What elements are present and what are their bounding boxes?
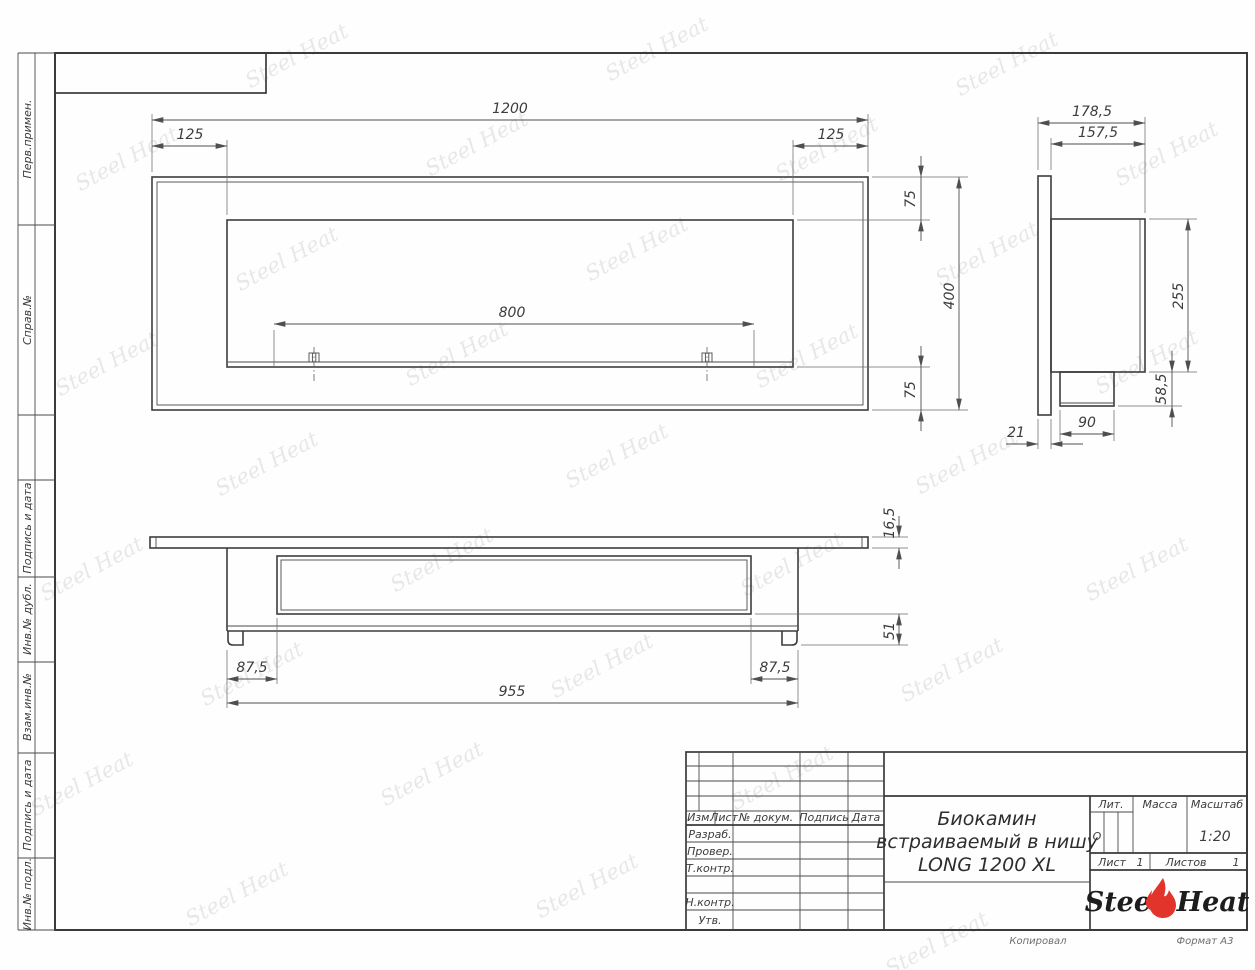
scale-value: 1:20 — [1199, 829, 1231, 845]
watermark: Steel Heat — [771, 111, 882, 185]
watermark: Steel Heat — [241, 18, 352, 92]
watermark: Steel Heat — [231, 221, 342, 295]
foot-left — [228, 631, 243, 645]
watermark: Steel Heat — [1111, 116, 1222, 190]
logo-heat-text: Heat — [1176, 887, 1250, 918]
watermark: Steel Heat — [401, 316, 512, 390]
dim-plan-right-offset: 87,5 — [759, 660, 790, 676]
dim-front-burner: 800 — [499, 305, 526, 321]
margin-label-inv-podl: Инв.№ подл. — [21, 858, 34, 930]
rev-header-doc: № докум. — [738, 811, 793, 824]
dim-front-total-width: 1200 — [492, 101, 528, 117]
dim-plan-rail-height: 51 — [882, 622, 898, 640]
staff-row-nkontr: Н.контр. — [685, 896, 734, 909]
watermark: Steel Heat — [211, 426, 322, 500]
rev-header-list: Лист — [709, 811, 738, 824]
dim-side-flange-thickness: 21 — [1007, 425, 1025, 441]
sheet-value: 1 — [1137, 856, 1144, 869]
copied-label: Копировал — [1009, 936, 1067, 947]
dim-front-height: 400 — [942, 283, 958, 310]
format-label: Формат А3 — [1177, 936, 1234, 947]
margin-label-podpis-data-1: Подпись и дата — [21, 482, 34, 573]
dim-front-right-offset: 125 — [818, 127, 845, 143]
dim-plan-body-width: 955 — [499, 684, 526, 700]
dim-side-box-width: 90 — [1078, 415, 1096, 431]
mass-label: Масса — [1142, 798, 1177, 811]
steelheat-logo: Steel Heat — [1085, 878, 1250, 918]
watermark: Steel Heat — [881, 906, 992, 970]
watermark: Steel Heat — [376, 736, 487, 810]
rev-header-date: Дата — [851, 811, 881, 824]
foot-right — [782, 631, 797, 645]
watermark: Steel Heat — [581, 211, 692, 285]
lit-value: О — [1093, 830, 1102, 843]
dim-plan-left-offset: 87,5 — [236, 660, 267, 676]
watermark-layer: Steel Heat Steel Heat Steel Heat Steel H… — [26, 11, 1222, 970]
watermark: Steel Heat — [546, 628, 657, 702]
watermark: Steel Heat — [36, 531, 147, 605]
burner-clip-right — [702, 347, 712, 381]
watermark: Steel Heat — [1081, 531, 1192, 605]
dim-side-depth-total: 178,5 — [1072, 104, 1112, 120]
scale-label: Масштаб — [1191, 798, 1243, 811]
watermark: Steel Heat — [751, 318, 862, 392]
watermark: Steel Heat — [181, 856, 292, 930]
rev-header-sign: Подпись — [799, 811, 848, 824]
dim-side-body-height: 255 — [1171, 283, 1187, 310]
watermark: Steel Heat — [931, 216, 1042, 290]
watermark: Steel Heat — [911, 424, 1022, 498]
watermark: Steel Heat — [1091, 324, 1202, 398]
staff-row-prover: Провер. — [687, 845, 733, 858]
watermark: Steel Heat — [896, 632, 1007, 706]
sheet-frame: Перв.примен. Справ.№ Подпись и дата Инв.… — [18, 53, 1247, 930]
dim-front-top-offset: 75 — [903, 190, 919, 208]
dim-side-depth-body: 157,5 — [1078, 125, 1118, 141]
margin-label-podpis-data-2: Подпись и дата — [21, 759, 34, 850]
sheet-label: Лист — [1097, 856, 1126, 869]
sheets-label: Листов — [1164, 856, 1206, 869]
margin-label-vzam-inv: Взам.инв.№ — [21, 673, 34, 741]
margin-label-sprav-no: Справ.№ — [21, 295, 34, 345]
staff-row-utv: Утв. — [698, 914, 721, 927]
sheets-value: 1 — [1233, 856, 1240, 869]
watermark: Steel Heat — [951, 26, 1062, 100]
watermark: Steel Heat — [71, 121, 182, 195]
margin-label-inv-dubl: Инв.№ дубл. — [21, 583, 34, 655]
dim-front-left-offset: 125 — [177, 127, 204, 143]
staff-row-tkontr: Т.контр. — [686, 862, 734, 875]
doc-title-line1: Биокамин — [937, 808, 1036, 830]
doc-title-line3: LONG 1200 XL — [918, 854, 1056, 876]
watermark: Steel Heat — [561, 418, 672, 492]
watermark: Steel Heat — [421, 106, 532, 180]
drawing-sheet: Steel Heat Steel Heat Steel Heat Steel H… — [0, 0, 1255, 970]
watermark: Steel Heat — [26, 746, 137, 820]
watermark: Steel Heat — [51, 326, 162, 400]
doc-title-line2: встраиваемый в нишу — [876, 831, 1098, 853]
margin-label-perv-primen: Перв.примен. — [21, 99, 34, 178]
staff-row-razrab: Разраб. — [688, 828, 731, 841]
watermark: Steel Heat — [531, 848, 642, 922]
dim-plan-bar-thickness: 16,5 — [882, 507, 898, 538]
watermark: Steel Heat — [601, 11, 712, 85]
lit-label: Лит. — [1097, 798, 1123, 811]
burner-clip-left — [309, 347, 319, 381]
drawing-canvas: Steel Heat Steel Heat Steel Heat Steel H… — [0, 0, 1255, 970]
top-left-stamp-box — [55, 53, 266, 93]
dim-front-bottom-offset: 75 — [903, 381, 919, 399]
rev-header-izm: Изм. — [687, 811, 713, 824]
dim-side-box-height: 58,5 — [1154, 373, 1170, 404]
